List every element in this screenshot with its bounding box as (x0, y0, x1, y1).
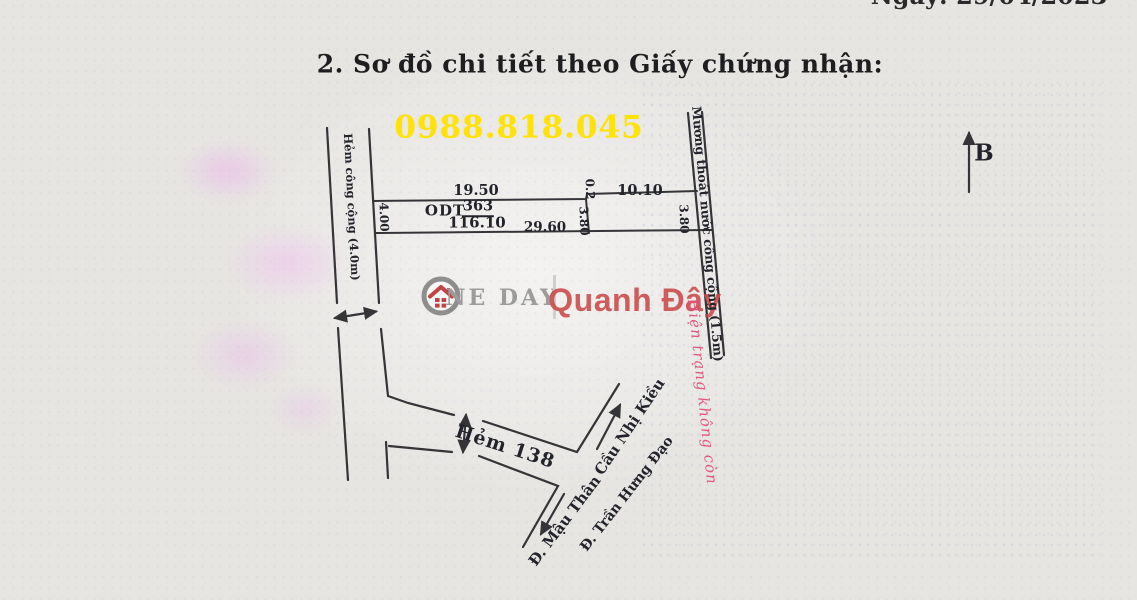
dim-right: 3.80 (677, 204, 690, 234)
parcel-area: 116.10 (448, 216, 505, 231)
dim-top-right: 10.10 (617, 184, 662, 199)
north-label: B (974, 142, 993, 165)
alley-width-arrow (335, 312, 376, 319)
brand-name-left: NE DAY (445, 287, 558, 309)
dim-left: 4.00 (377, 202, 390, 232)
phone-number: 0988.818.045 (394, 113, 643, 144)
scan-date: Ngày: 29/04/2023 (871, 0, 1108, 8)
dim-middle: 3.80 (577, 206, 590, 236)
dim-top-left: 19.50 (453, 184, 498, 199)
dim-top-jog: 0.2 (584, 178, 597, 199)
page-title: 2. Sơ đồ chi tiết theo Giấy chứng nhận: (317, 52, 884, 77)
dim-bottom: 29.60 (524, 221, 566, 235)
